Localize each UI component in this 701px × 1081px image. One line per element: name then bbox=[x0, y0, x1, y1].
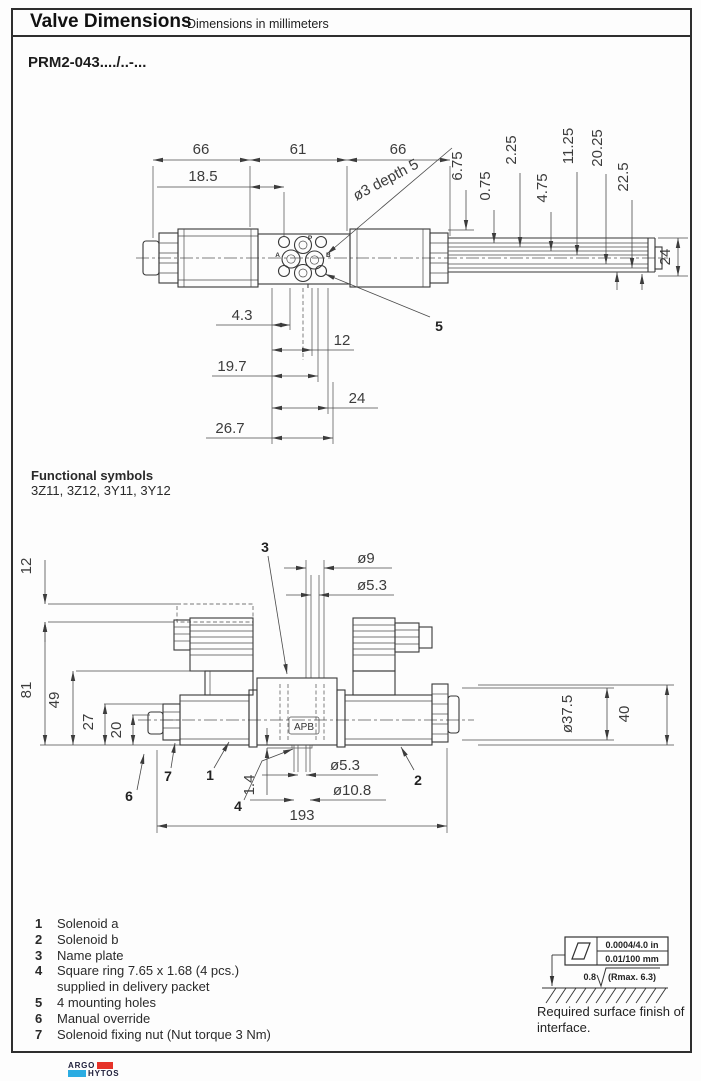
logo-text-hytos: HYTOS bbox=[88, 1069, 119, 1078]
top-view-dimension-lines bbox=[153, 148, 688, 444]
legend-item-2: 2Solenoid b bbox=[35, 932, 271, 948]
logo-row-hytos: HYTOS bbox=[68, 1070, 119, 1079]
dim-6-75: 6.75 bbox=[449, 151, 466, 180]
legend-item-7: 7Solenoid fixing nut (Nut torque 3 Nm) bbox=[35, 1027, 271, 1043]
legend-text: Solenoid b bbox=[57, 932, 118, 948]
dim-dia37-5: ø37.5 bbox=[559, 695, 576, 733]
dim-20: 20 bbox=[108, 722, 125, 739]
legend-text: Solenoid a bbox=[57, 916, 118, 932]
legend-text: 4 mounting holes bbox=[57, 995, 156, 1011]
logo-row-argo: ARGO bbox=[68, 1061, 119, 1070]
legend-text: Name plate bbox=[57, 948, 123, 964]
dim-18-5: 18.5 bbox=[188, 168, 217, 185]
legend-num: 5 bbox=[35, 995, 57, 1011]
header-divider bbox=[11, 35, 692, 37]
port-label-b: B bbox=[326, 252, 331, 259]
dim-22-5: 22.5 bbox=[615, 162, 632, 191]
dim-0-75: 0.75 bbox=[477, 171, 494, 200]
dim-1-4: 1.4 bbox=[241, 775, 258, 796]
functional-symbols-codes: 3Z11, 3Z12, 3Y11, 3Y12 bbox=[31, 483, 171, 498]
logo-red-block bbox=[97, 1062, 113, 1069]
dim-66-right: 66 bbox=[390, 141, 407, 158]
dim-dia5-3-top: ø5.3 bbox=[357, 577, 387, 594]
legend-num: 7 bbox=[35, 1027, 57, 1043]
port-label-t: T bbox=[306, 283, 310, 290]
surface-hatching bbox=[542, 988, 668, 1003]
legend-item-5: 54 mounting holes bbox=[35, 995, 271, 1011]
callout-1: 1 bbox=[206, 767, 214, 783]
legend-num-spacer bbox=[35, 979, 57, 995]
page-title: Valve Dimensions bbox=[30, 11, 192, 33]
dim-193: 193 bbox=[289, 807, 314, 824]
top-view-body bbox=[136, 229, 668, 287]
dim-12: 12 bbox=[334, 332, 351, 349]
surface-finish-caption-line1: Required surface finish of bbox=[537, 1004, 697, 1020]
legend-item-4: 4Square ring 7.65 x 1.68 (4 pcs.) bbox=[35, 963, 271, 979]
functional-symbols: Functional symbols 3Z11, 3Z12, 3Y11, 3Y1… bbox=[31, 468, 171, 498]
flatness-mm: 0.01/100 mm bbox=[605, 954, 659, 964]
callout-6: 6 bbox=[125, 788, 133, 804]
legend-num: 1 bbox=[35, 916, 57, 932]
logo-blue-block bbox=[68, 1070, 86, 1077]
page-subtitle: Dimensions in millimeters bbox=[187, 17, 329, 31]
legend-item-3: 3Name plate bbox=[35, 948, 271, 964]
apb-marking: APB bbox=[294, 722, 314, 733]
dim-40: 40 bbox=[616, 706, 633, 723]
legend-item-1: 1Solenoid a bbox=[35, 916, 271, 932]
dim-61: 61 bbox=[290, 141, 307, 158]
legend-num: 2 bbox=[35, 932, 57, 948]
legend-text: Solenoid fixing nut (Nut torque 3 Nm) bbox=[57, 1027, 271, 1043]
port-label-p: P bbox=[308, 235, 313, 242]
datasheet-page: Valve Dimensions Dimensions in millimete… bbox=[0, 0, 701, 1081]
front-view-labels: 12 81 49 27 20 ø9 ø5.3 ø37.5 40 1.4 ø5.3… bbox=[18, 539, 633, 824]
port-label-a: A bbox=[275, 252, 280, 259]
callout-3: 3 bbox=[261, 539, 269, 555]
legend-text: supplied in delivery packet bbox=[57, 979, 209, 995]
legend-num: 3 bbox=[35, 948, 57, 964]
surface-finish-symbol: 0.0004/4.0 in 0.01/100 mm 0.8 (Rmax. 6.3… bbox=[530, 925, 690, 1010]
dim-19-7: 19.7 bbox=[217, 358, 246, 375]
roughness-rmax: (Rmax. 6.3) bbox=[608, 972, 656, 982]
dim-27: 27 bbox=[80, 714, 97, 731]
functional-symbols-label: Functional symbols bbox=[31, 468, 171, 483]
model-code: PRM2-043..../..-... bbox=[28, 54, 146, 71]
callout-5: 5 bbox=[435, 318, 443, 334]
dim-81: 81 bbox=[18, 682, 35, 699]
dim-4-75: 4.75 bbox=[534, 173, 551, 202]
argo-hytos-logo: ARGO HYTOS bbox=[68, 1061, 119, 1078]
dim-dia5-3-bottom: ø5.3 bbox=[330, 757, 360, 774]
callout-4: 4 bbox=[234, 798, 242, 814]
legend-num: 4 bbox=[35, 963, 57, 979]
dim-dia9: ø9 bbox=[357, 550, 375, 567]
legend-item-6: 6Manual override bbox=[35, 1011, 271, 1027]
surface-finish-caption-line2: interface. bbox=[537, 1020, 697, 1036]
hole-note: ø3 depth 5 bbox=[350, 156, 421, 205]
callout-7: 7 bbox=[164, 768, 172, 784]
legend-num: 6 bbox=[35, 1011, 57, 1027]
dim-20-25: 20.25 bbox=[589, 129, 606, 167]
dim-49: 49 bbox=[46, 692, 63, 709]
dim-24-bottom: 24 bbox=[349, 390, 366, 407]
surface-finish-caption: Required surface finish of interface. bbox=[537, 1004, 697, 1036]
roughness-value: 0.8 bbox=[583, 972, 596, 982]
front-view-body bbox=[138, 560, 474, 748]
legend-text: Manual override bbox=[57, 1011, 150, 1027]
legend-text: Square ring 7.65 x 1.68 (4 pcs.) bbox=[57, 963, 239, 979]
legend-item-4-cont: supplied in delivery packet bbox=[35, 979, 271, 995]
dim-26-7: 26.7 bbox=[215, 420, 244, 437]
dim-2-25: 2.25 bbox=[503, 135, 520, 164]
dim-dia10-8: ø10.8 bbox=[333, 782, 371, 799]
dim-12-left: 12 bbox=[18, 558, 35, 575]
dim-24-side: 24 bbox=[657, 249, 674, 266]
legend: 1Solenoid a 2Solenoid b 3Name plate 4Squ… bbox=[35, 916, 271, 1042]
dim-4-3: 4.3 bbox=[232, 307, 253, 324]
top-view-labels: 66 61 66 18.5 ø3 depth 5 6.75 0.75 2.25 … bbox=[188, 128, 674, 437]
dim-66-left: 66 bbox=[193, 141, 210, 158]
flatness-inch: 0.0004/4.0 in bbox=[605, 940, 658, 950]
top-view-drawing: 66 61 66 18.5 ø3 depth 5 6.75 0.75 2.25 … bbox=[12, 70, 692, 460]
roughness-callout: 0.8 (Rmax. 6.3) bbox=[583, 968, 660, 986]
front-view-drawing: 12 81 49 27 20 ø9 ø5.3 ø37.5 40 1.4 ø5.3… bbox=[12, 520, 692, 850]
callout-2: 2 bbox=[414, 772, 422, 788]
dim-11-25: 11.25 bbox=[560, 128, 577, 164]
